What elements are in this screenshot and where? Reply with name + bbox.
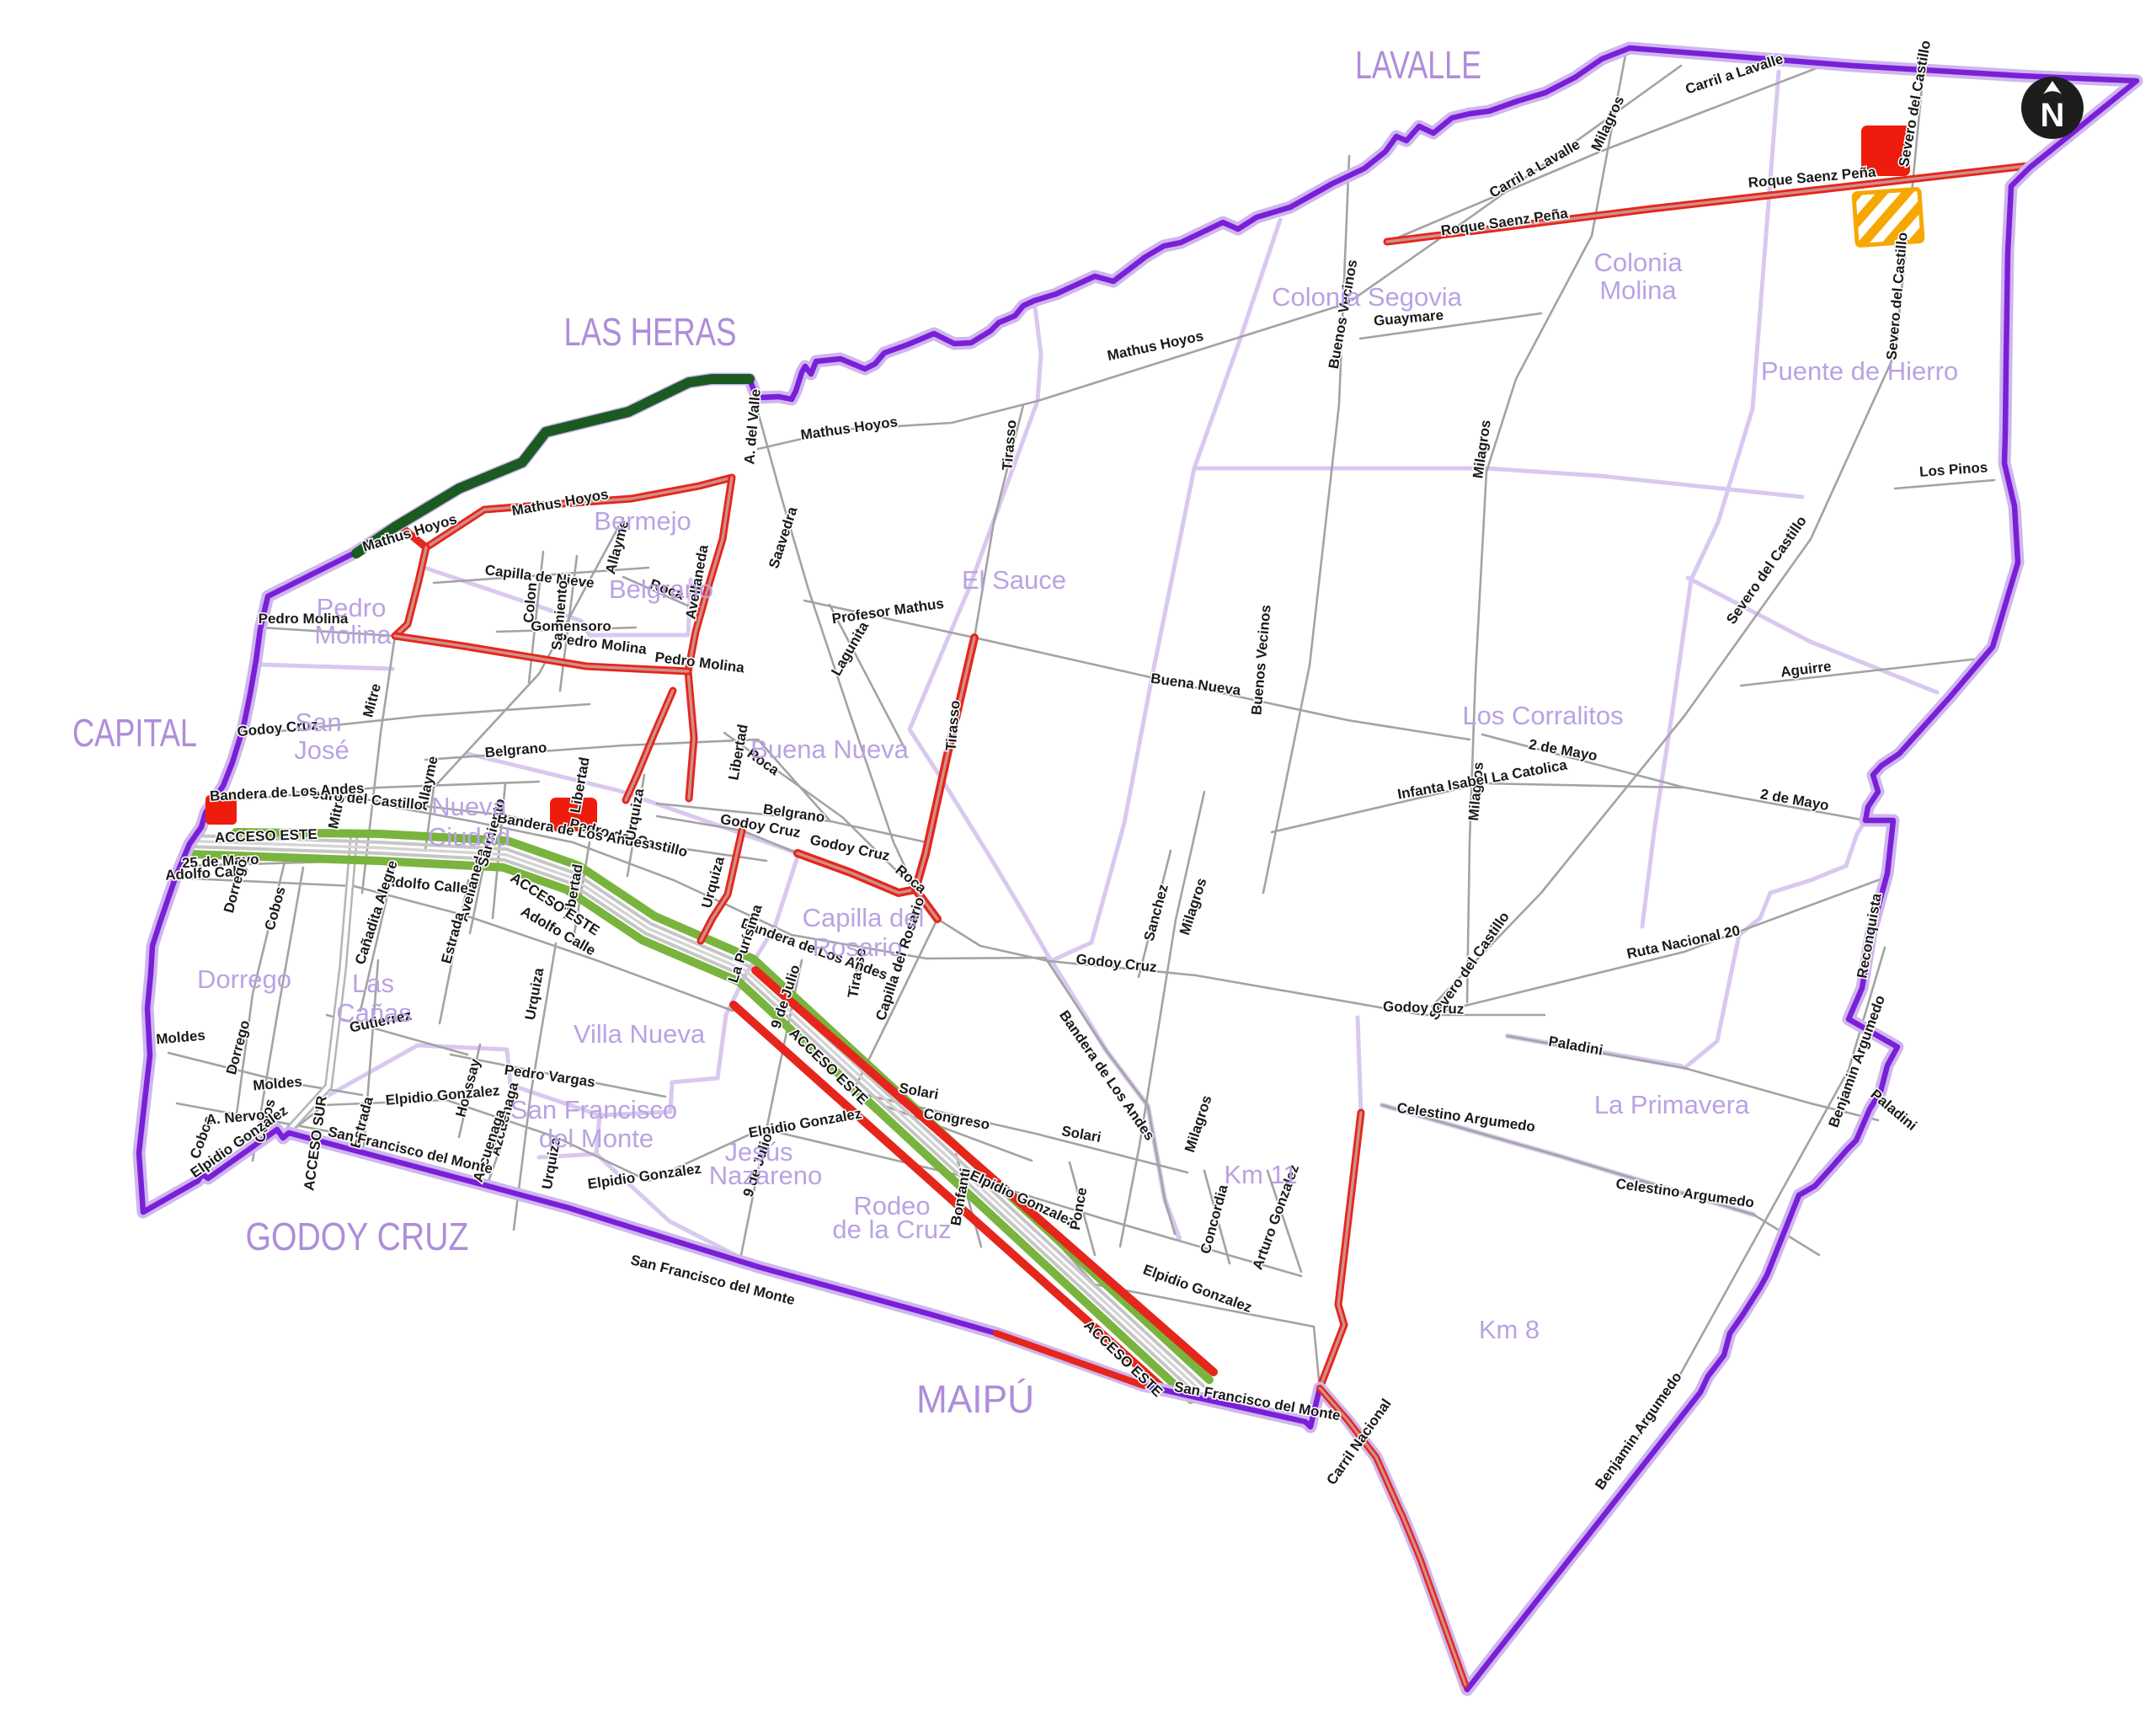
svg-text:Puente de Hierro: Puente de Hierro xyxy=(1761,356,1958,386)
svg-text:Dorrego: Dorrego xyxy=(197,964,291,994)
svg-text:N: N xyxy=(2041,97,2065,134)
svg-text:José: José xyxy=(294,735,349,765)
svg-text:Colonia Segovia: Colonia Segovia xyxy=(1272,282,1463,312)
svg-text:Las: Las xyxy=(352,969,394,998)
svg-text:San: San xyxy=(295,708,341,737)
svg-text:Cañas: Cañas xyxy=(336,998,412,1028)
svg-text:El Sauce: El Sauce xyxy=(962,565,1066,595)
svg-text:Bermejo: Bermejo xyxy=(594,506,691,536)
svg-text:San Francisco: San Francisco xyxy=(510,1095,677,1124)
svg-text:Villa Nueva: Villa Nueva xyxy=(574,1019,706,1049)
svg-text:Colonia: Colonia xyxy=(1593,248,1683,277)
svg-text:Km 8: Km 8 xyxy=(1479,1315,1540,1344)
svg-text:Buena Nueva: Buena Nueva xyxy=(750,734,910,764)
svg-text:Capilla del: Capilla del xyxy=(803,903,925,932)
svg-text:Ciudad: Ciudad xyxy=(428,822,510,852)
svg-text:Nueva: Nueva xyxy=(431,792,507,821)
svg-text:Molina: Molina xyxy=(1599,275,1677,305)
svg-text:Gomensoro: Gomensoro xyxy=(531,618,611,634)
svg-text:MAIPÚ: MAIPÚ xyxy=(916,1377,1034,1421)
svg-text:Molina: Molina xyxy=(314,620,392,649)
svg-text:Km 11: Km 11 xyxy=(1224,1160,1297,1189)
svg-text:Rosario: Rosario xyxy=(813,932,903,962)
svg-text:Godoy Cruz: Godoy Cruz xyxy=(1383,998,1465,1017)
svg-text:Pedro: Pedro xyxy=(317,593,387,622)
svg-text:CAPITAL: CAPITAL xyxy=(72,711,197,755)
svg-text:LAS HERAS: LAS HERAS xyxy=(564,310,737,354)
svg-text:del Monte: del Monte xyxy=(539,1124,654,1153)
svg-text:Los Corralitos: Los Corralitos xyxy=(1462,701,1623,730)
svg-text:GODOY CRUZ: GODOY CRUZ xyxy=(246,1215,469,1258)
svg-text:La Primavera: La Primavera xyxy=(1594,1090,1750,1119)
svg-text:Belgrano: Belgrano xyxy=(609,574,713,604)
svg-text:de la Cruz: de la Cruz xyxy=(832,1215,951,1244)
svg-text:Nazareno: Nazareno xyxy=(709,1161,822,1190)
svg-text:LAVALLE: LAVALLE xyxy=(1355,43,1481,87)
